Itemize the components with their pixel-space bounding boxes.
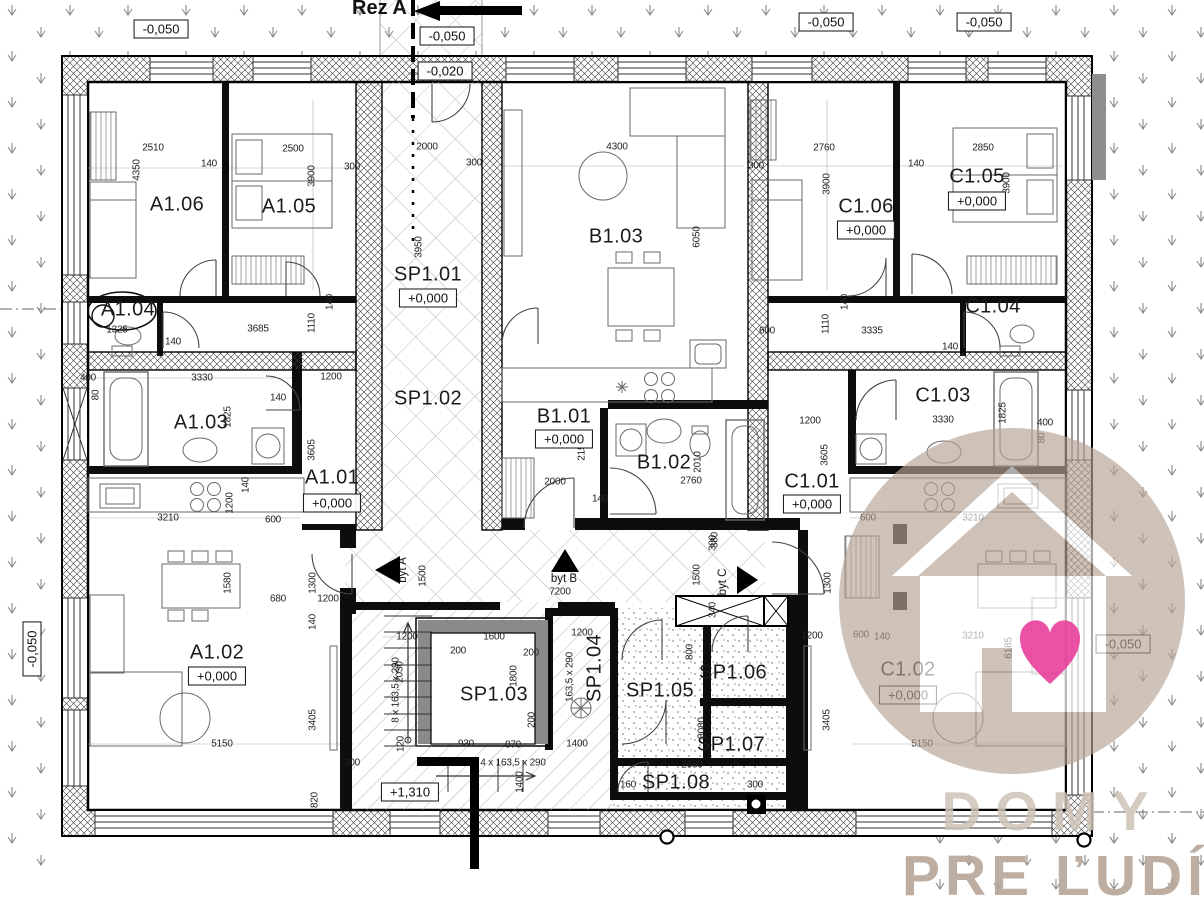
watermark-text-line1: DOMY xyxy=(942,779,1163,843)
elevator-shaft xyxy=(416,618,550,746)
drain-mark xyxy=(661,831,674,844)
windows-left xyxy=(63,95,87,786)
watermark-text-line2: PRE ĽUDÍ xyxy=(902,843,1204,898)
floor-plan-drawing xyxy=(0,0,1204,898)
floor-drain-icon xyxy=(571,698,591,718)
exterior-wall-ledge xyxy=(1092,74,1106,180)
floor-plan-page: 2510435014025003900300200030039504300605… xyxy=(0,0,1204,898)
windows-bottom xyxy=(95,811,1052,835)
